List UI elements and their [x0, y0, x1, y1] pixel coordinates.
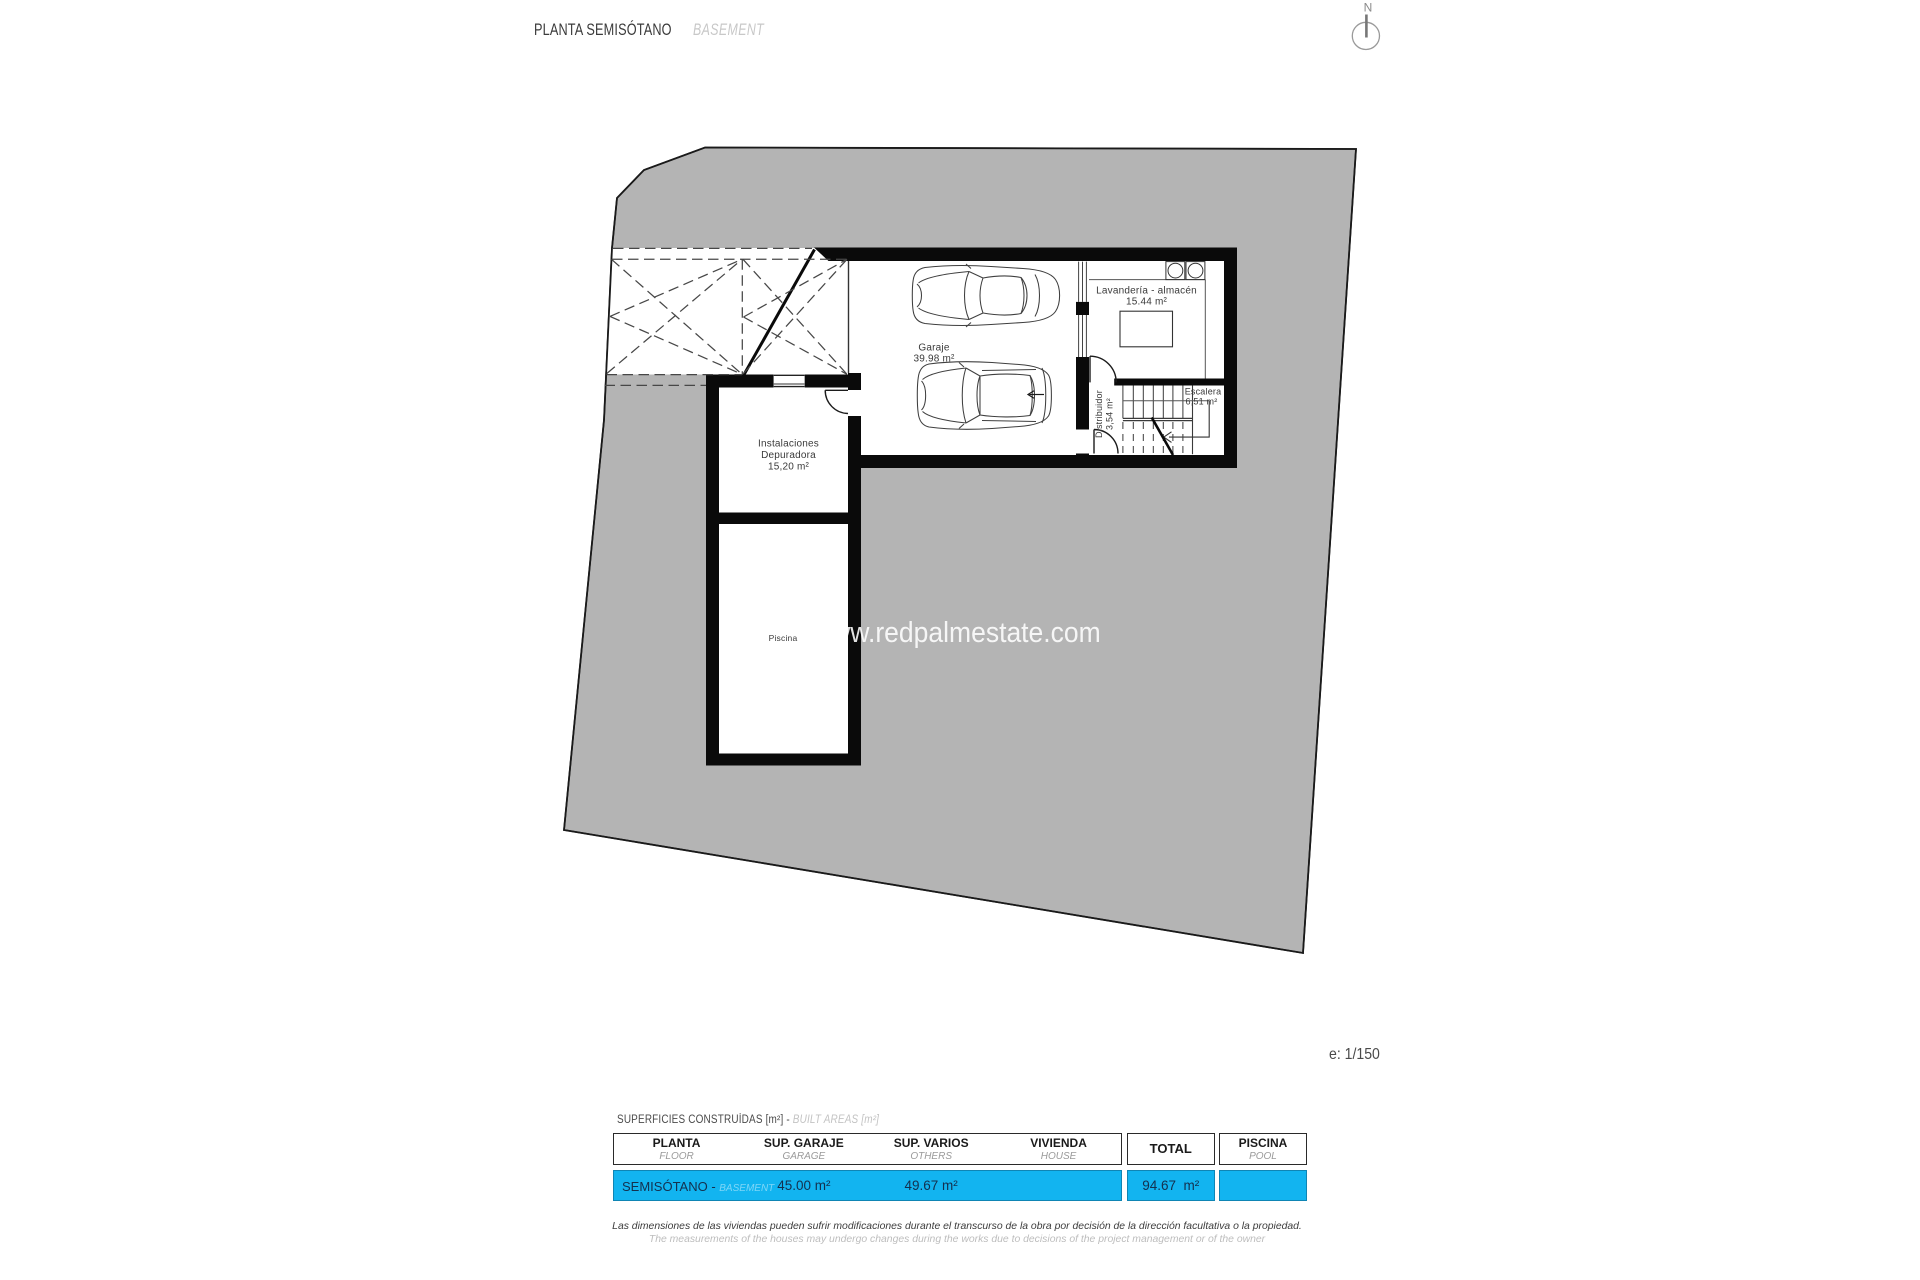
svg-text:15.44 m²: 15.44 m²: [1126, 297, 1168, 308]
svg-text:Instalaciones: Instalaciones: [758, 439, 819, 450]
svg-text:6,51 m²: 6,51 m²: [1186, 397, 1218, 407]
svg-text:Garaje: Garaje: [918, 343, 949, 354]
svg-text:Lavandería - almacén: Lavandería - almacén: [1096, 286, 1197, 297]
svg-text:Escalera: Escalera: [1185, 387, 1222, 397]
svg-text:N: N: [1364, 1, 1373, 15]
svg-text:Piscina: Piscina: [769, 633, 798, 643]
svg-text:Depuradora: Depuradora: [761, 450, 816, 461]
svg-text:Distribuidor: Distribuidor: [1094, 390, 1104, 438]
svg-text:3,54 m²: 3,54 m²: [1105, 398, 1115, 430]
svg-text:15,20 m²: 15,20 m²: [768, 461, 810, 472]
